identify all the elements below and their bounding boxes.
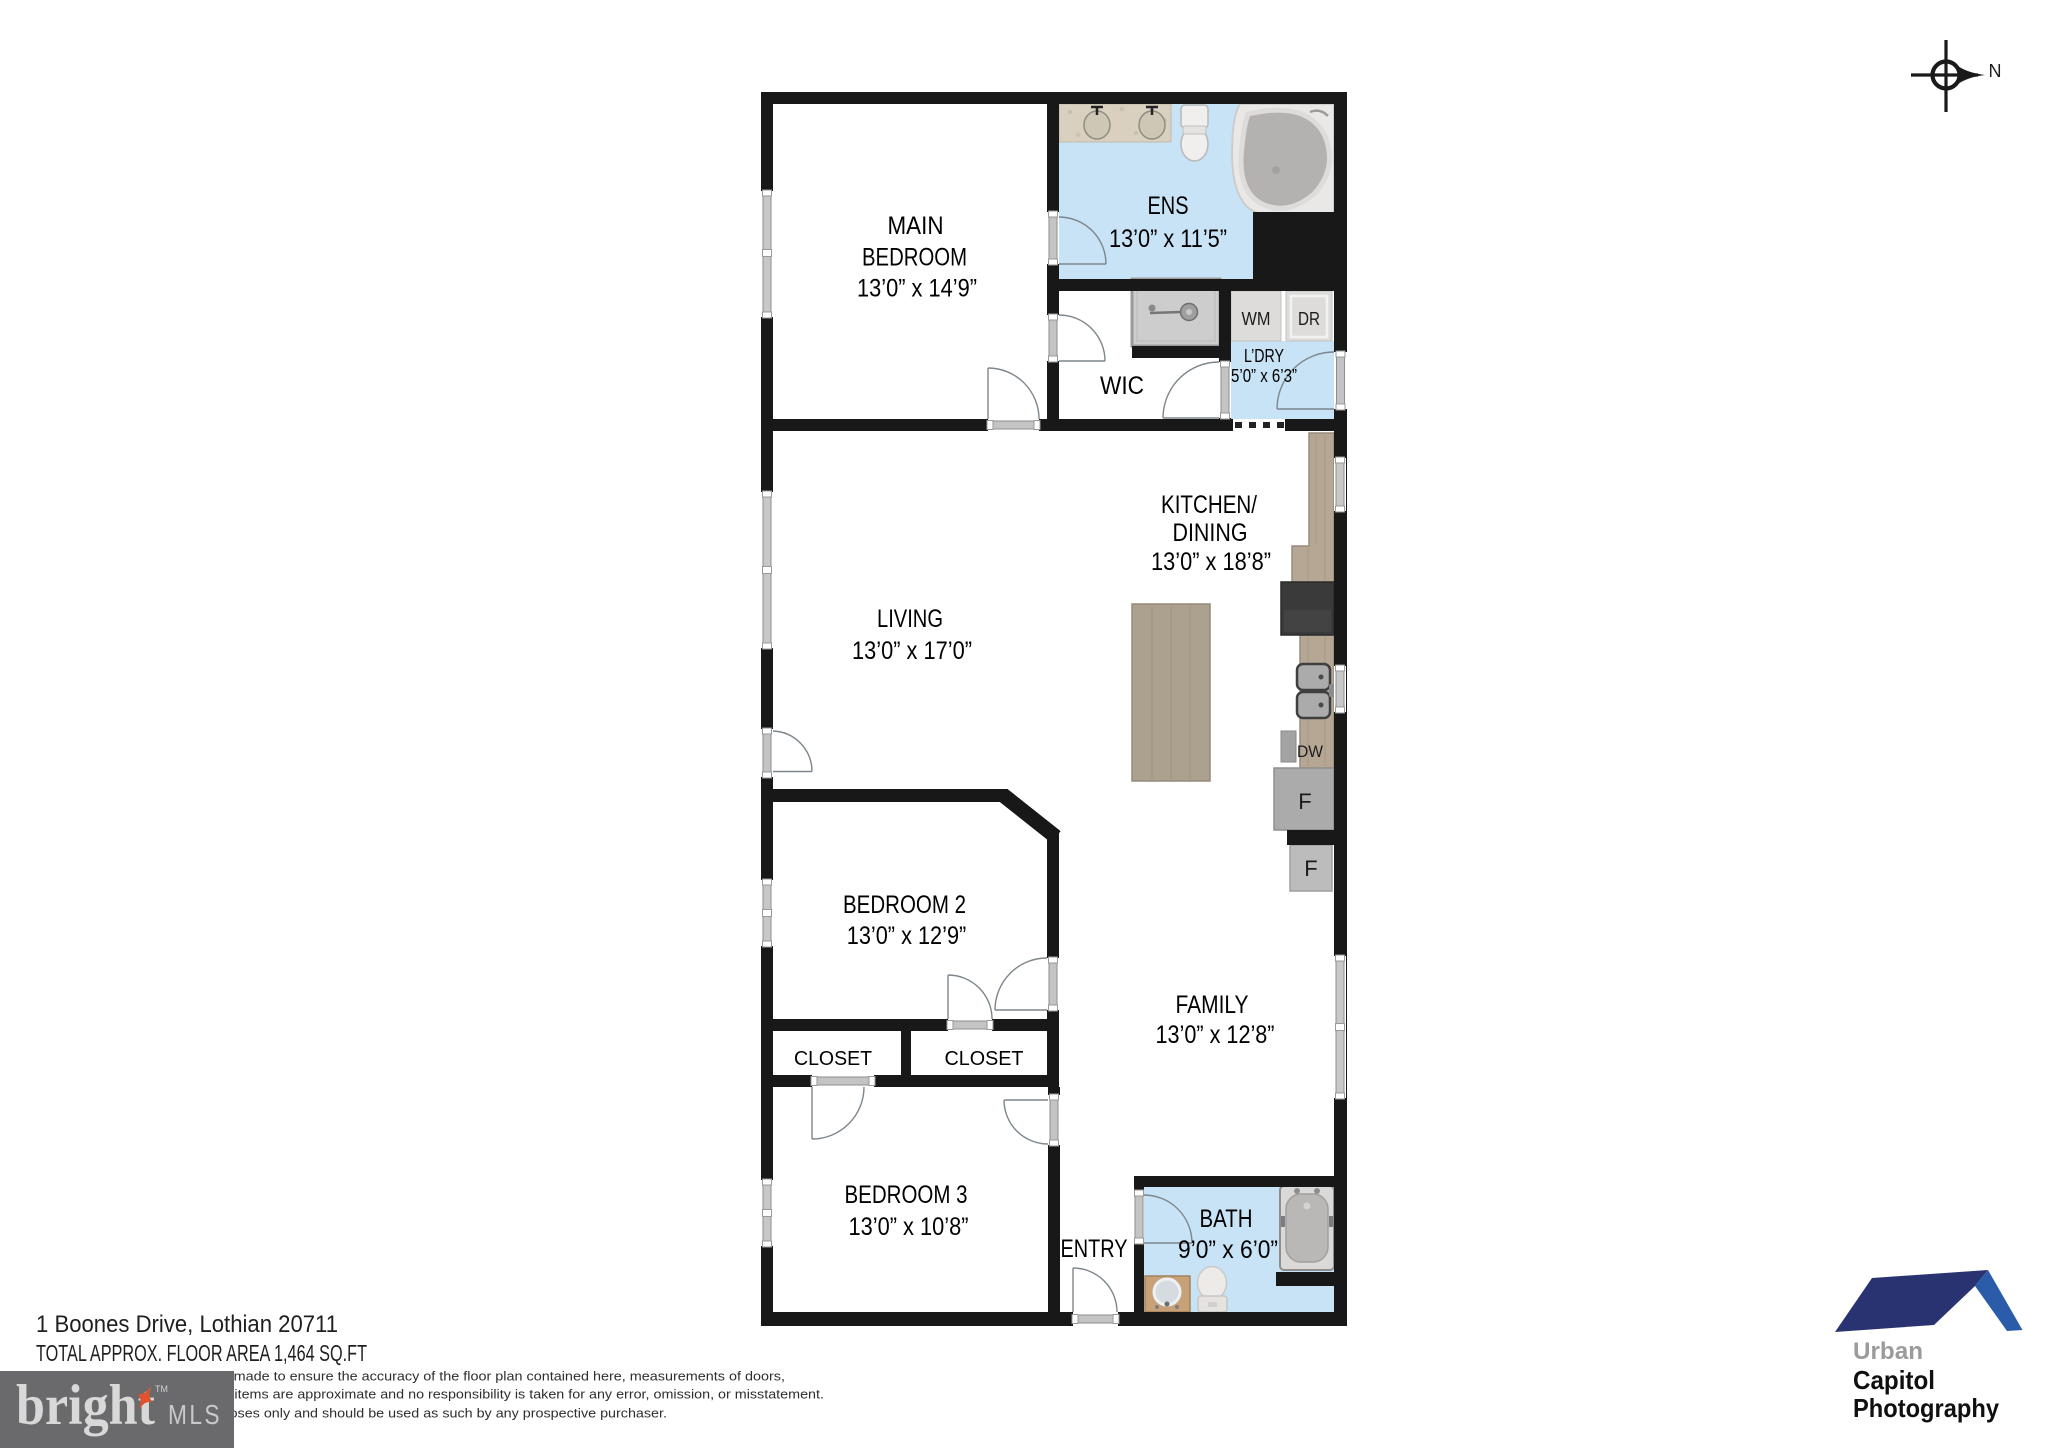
svg-text:DR: DR — [1298, 309, 1320, 329]
svg-text:13’0” x 12’9”: 13’0” x 12’9” — [847, 922, 967, 950]
svg-text:TOTAL APPROX. FLOOR AREA 1,464: TOTAL APPROX. FLOOR AREA 1,464 SQ.FT — [36, 1340, 367, 1366]
svg-text:BEDROOM 2: BEDROOM 2 — [843, 891, 966, 919]
svg-text:DINING: DINING — [1173, 519, 1248, 547]
svg-text:WIC: WIC — [1100, 372, 1144, 400]
svg-text:MAIN: MAIN — [888, 212, 944, 240]
svg-text:bright: bright — [16, 1374, 155, 1437]
svg-text:MLS: MLS — [168, 1399, 222, 1430]
svg-text:BATH: BATH — [1200, 1205, 1253, 1233]
svg-text:LIVING: LIVING — [877, 605, 943, 633]
svg-text:CLOSET: CLOSET — [945, 1048, 1024, 1070]
svg-text:BEDROOM: BEDROOM — [862, 244, 967, 272]
svg-text:13’0” x 12’8”: 13’0” x 12’8” — [1156, 1021, 1275, 1049]
svg-text:Capitol: Capitol — [1853, 1365, 1935, 1395]
svg-text:1 Boones Drive, Lothian 20711: 1 Boones Drive, Lothian 20711 — [36, 1311, 338, 1338]
svg-text:F: F — [1304, 856, 1317, 881]
svg-text:WM: WM — [1242, 309, 1271, 329]
svg-text:TM: TM — [155, 1384, 168, 1394]
svg-text:CLOSET: CLOSET — [794, 1048, 872, 1070]
svg-text:KITCHEN/: KITCHEN/ — [1161, 491, 1257, 519]
svg-text:F: F — [1298, 789, 1311, 814]
svg-text:ENS: ENS — [1148, 192, 1189, 220]
svg-text:13’0” x 10’8”: 13’0” x 10’8” — [849, 1213, 969, 1241]
svg-text:L’DRY: L’DRY — [1244, 346, 1284, 366]
svg-text:BEDROOM 3: BEDROOM 3 — [845, 1181, 968, 1209]
svg-text:DW: DW — [1297, 742, 1323, 761]
svg-text:13’0” x 14’9”: 13’0” x 14’9” — [857, 275, 977, 303]
svg-text:Urban: Urban — [1853, 1338, 1923, 1365]
svg-text:N: N — [1989, 61, 2002, 81]
svg-text:Photography: Photography — [1853, 1393, 1999, 1423]
svg-text:13’0” x 18’8”: 13’0” x 18’8” — [1151, 548, 1271, 576]
svg-text:5’0” x 6’3”: 5’0” x 6’3” — [1231, 366, 1297, 386]
svg-text:9’0” x 6’0”: 9’0” x 6’0” — [1178, 1236, 1278, 1264]
svg-text:FAMILY: FAMILY — [1176, 991, 1249, 1019]
svg-text:13’0” x 11’5”: 13’0” x 11’5” — [1109, 225, 1227, 253]
svg-text:13’0” x 17’0”: 13’0” x 17’0” — [852, 637, 972, 665]
svg-text:ENTRY: ENTRY — [1061, 1235, 1128, 1263]
